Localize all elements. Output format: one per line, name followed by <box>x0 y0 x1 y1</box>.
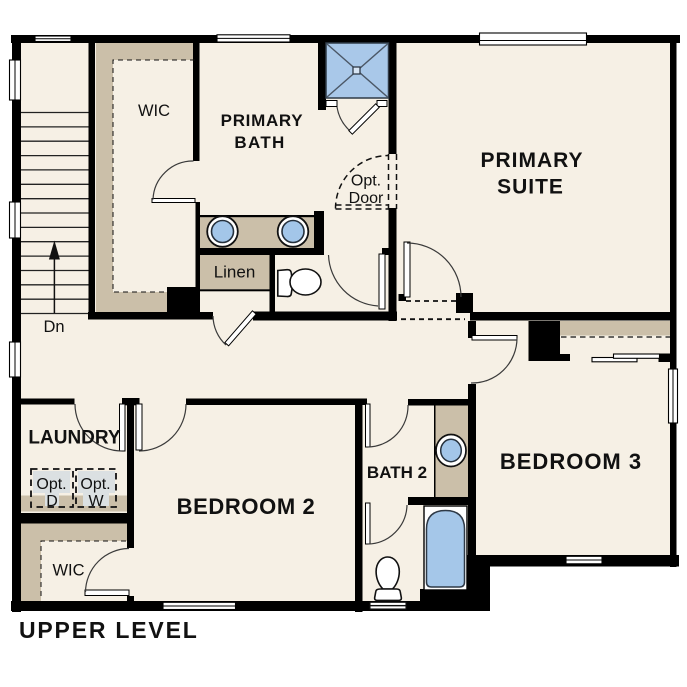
svg-text:BATH: BATH <box>234 133 285 152</box>
svg-text:LAUNDRY: LAUNDRY <box>28 428 121 449</box>
svg-text:D: D <box>46 493 58 510</box>
svg-text:Opt.: Opt. <box>351 173 381 190</box>
svg-text:Opt.: Opt. <box>80 476 110 493</box>
svg-text:Linen: Linen <box>214 263 256 282</box>
svg-text:SUITE: SUITE <box>497 176 564 199</box>
svg-text:BEDROOM 3: BEDROOM 3 <box>500 449 642 474</box>
svg-text:BATH 2: BATH 2 <box>367 463 427 482</box>
svg-text:PRIMARY: PRIMARY <box>480 149 583 172</box>
svg-text:BEDROOM 2: BEDROOM 2 <box>177 494 316 519</box>
svg-text:W: W <box>88 493 104 510</box>
svg-text:Dn: Dn <box>43 318 64 336</box>
svg-text:WIC: WIC <box>138 102 170 120</box>
svg-text:Opt.: Opt. <box>36 476 66 493</box>
svg-text:WIC: WIC <box>52 562 84 580</box>
svg-text:UPPER LEVEL: UPPER LEVEL <box>19 617 199 643</box>
svg-text:Door: Door <box>349 190 384 207</box>
svg-text:PRIMARY: PRIMARY <box>221 111 304 130</box>
